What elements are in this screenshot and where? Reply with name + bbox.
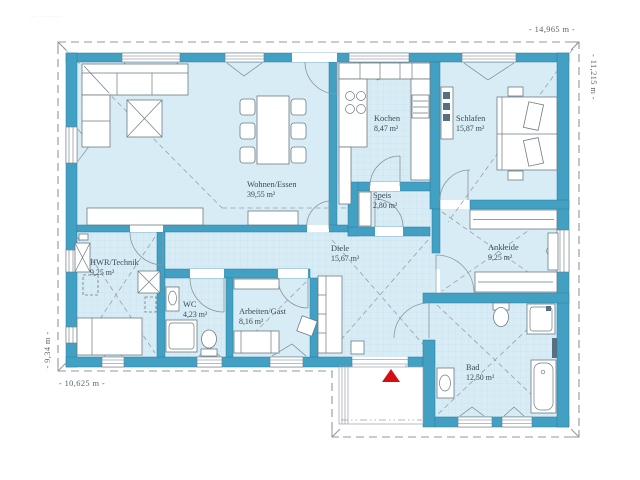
svg-text:4,23 m²: 4,23 m²: [183, 310, 208, 319]
floor-plan-drawing: - 14,965 m - - 11,215 m - - 9,34 m - - 1…: [0, 0, 640, 480]
sideboard: [87, 208, 203, 225]
entrance-porch: [339, 367, 423, 424]
svg-text:12,50 m²: 12,50 m²: [466, 373, 495, 382]
svg-text:8,16 m²: 8,16 m²: [239, 317, 264, 326]
svg-text:9,25 m²: 9,25 m²: [488, 253, 513, 262]
dimension-top: - 14,965 m -: [529, 25, 575, 34]
svg-text:15,87 m²: 15,87 m²: [456, 124, 485, 133]
svg-text:8,47 m²: 8,47 m²: [374, 124, 399, 133]
dimension-right: - 11,215 m -: [589, 54, 598, 100]
dimension-bottom: - 10,625 m -: [59, 379, 105, 388]
wall-exterior-left: [66, 53, 77, 367]
floor-plan-page: - 14,965 m - - 11,215 m - - 9,34 m - - 1…: [0, 0, 640, 480]
dining-table: [240, 96, 306, 164]
svg-text:15,67 m²: 15,67 m²: [331, 254, 360, 263]
label-arbeiten: Arbeiten/Gast: [239, 307, 287, 316]
label-speis: Speis: [373, 191, 391, 200]
dimension-left: - 9,34 m -: [43, 331, 52, 368]
svg-text:2,80 m²: 2,80 m²: [373, 201, 398, 210]
label-schlafen: Schlafen: [456, 114, 486, 123]
wall-porch-bad: [423, 340, 435, 427]
svg-text:39,55 m²: 39,55 m²: [247, 190, 276, 199]
label-hwr: HWR/Technik: [90, 258, 140, 267]
pantry-shelf: [359, 192, 371, 226]
desk: [234, 279, 279, 289]
svg-text:9,25 m²: 9,25 m²: [90, 268, 115, 277]
fineprint-text: ···· ·· ·······: [30, 14, 61, 19]
label-diele: Diele: [331, 244, 349, 253]
bathtub: [531, 360, 556, 413]
sideboard-small: [248, 211, 298, 225]
radiator: [552, 338, 557, 358]
coffee-table: [127, 100, 162, 137]
label-ankleide: Ankleide: [488, 243, 519, 252]
label-wc: WC: [183, 300, 197, 309]
floor-diele-corridor: [165, 232, 430, 269]
shower-wc: [166, 320, 197, 352]
label-bad: Bad: [466, 363, 480, 372]
label-kochen: Kochen: [374, 114, 401, 123]
label-wohnen: Wohnen/Essen: [247, 180, 297, 189]
